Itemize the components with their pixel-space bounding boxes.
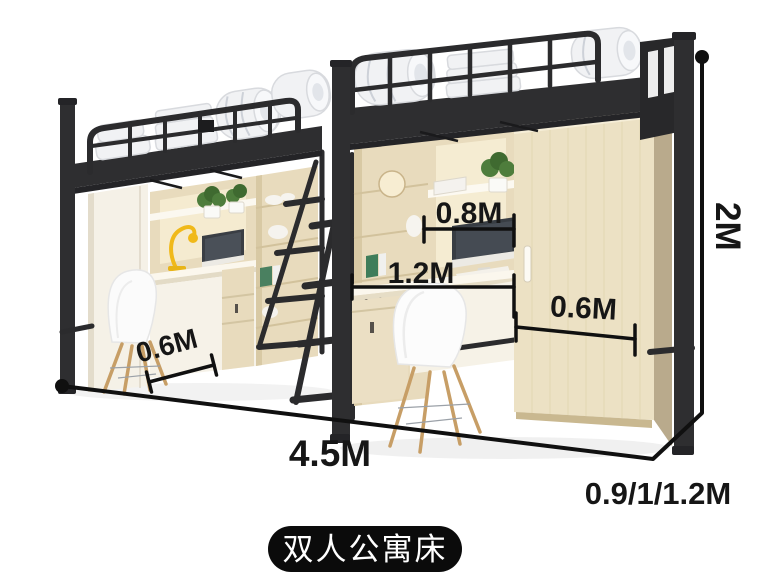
product-badge: 双人公寓床 [268, 526, 462, 572]
dimension-endpoint-left [55, 379, 69, 393]
wire-ball-lamp [379, 171, 405, 197]
wardrobe-depth-label: 0.6M [549, 290, 617, 326]
left-front-post [58, 98, 92, 394]
dimension-endpoint-top [695, 50, 709, 64]
desk-length-label: 1.2M [388, 257, 455, 290]
wardrobe-handle [524, 246, 531, 282]
right-loft-unit [293, 25, 696, 455]
right-wardrobe [514, 106, 692, 446]
height-dimension-label: 2M [708, 202, 747, 251]
scene: 2M 4.5M 0.9/1/1.2M 0.8M 1.2M 0.6M [0, 0, 771, 575]
product-badge-label: 双人公寓床 [283, 532, 448, 567]
depth-options-label: 0.9/1/1.2M [585, 476, 731, 511]
hutch-width-label: 0.8M [436, 197, 503, 230]
rail-accessory [198, 120, 214, 132]
length-dimension-label: 4.5M [289, 433, 371, 474]
right-front-left-post [330, 60, 352, 443]
right-front-right-post [672, 32, 696, 455]
product-dimension-image: 2M 4.5M 0.9/1/1.2M 0.8M 1.2M 0.6M [0, 0, 771, 575]
left-drawer-pedestal [222, 266, 254, 370]
